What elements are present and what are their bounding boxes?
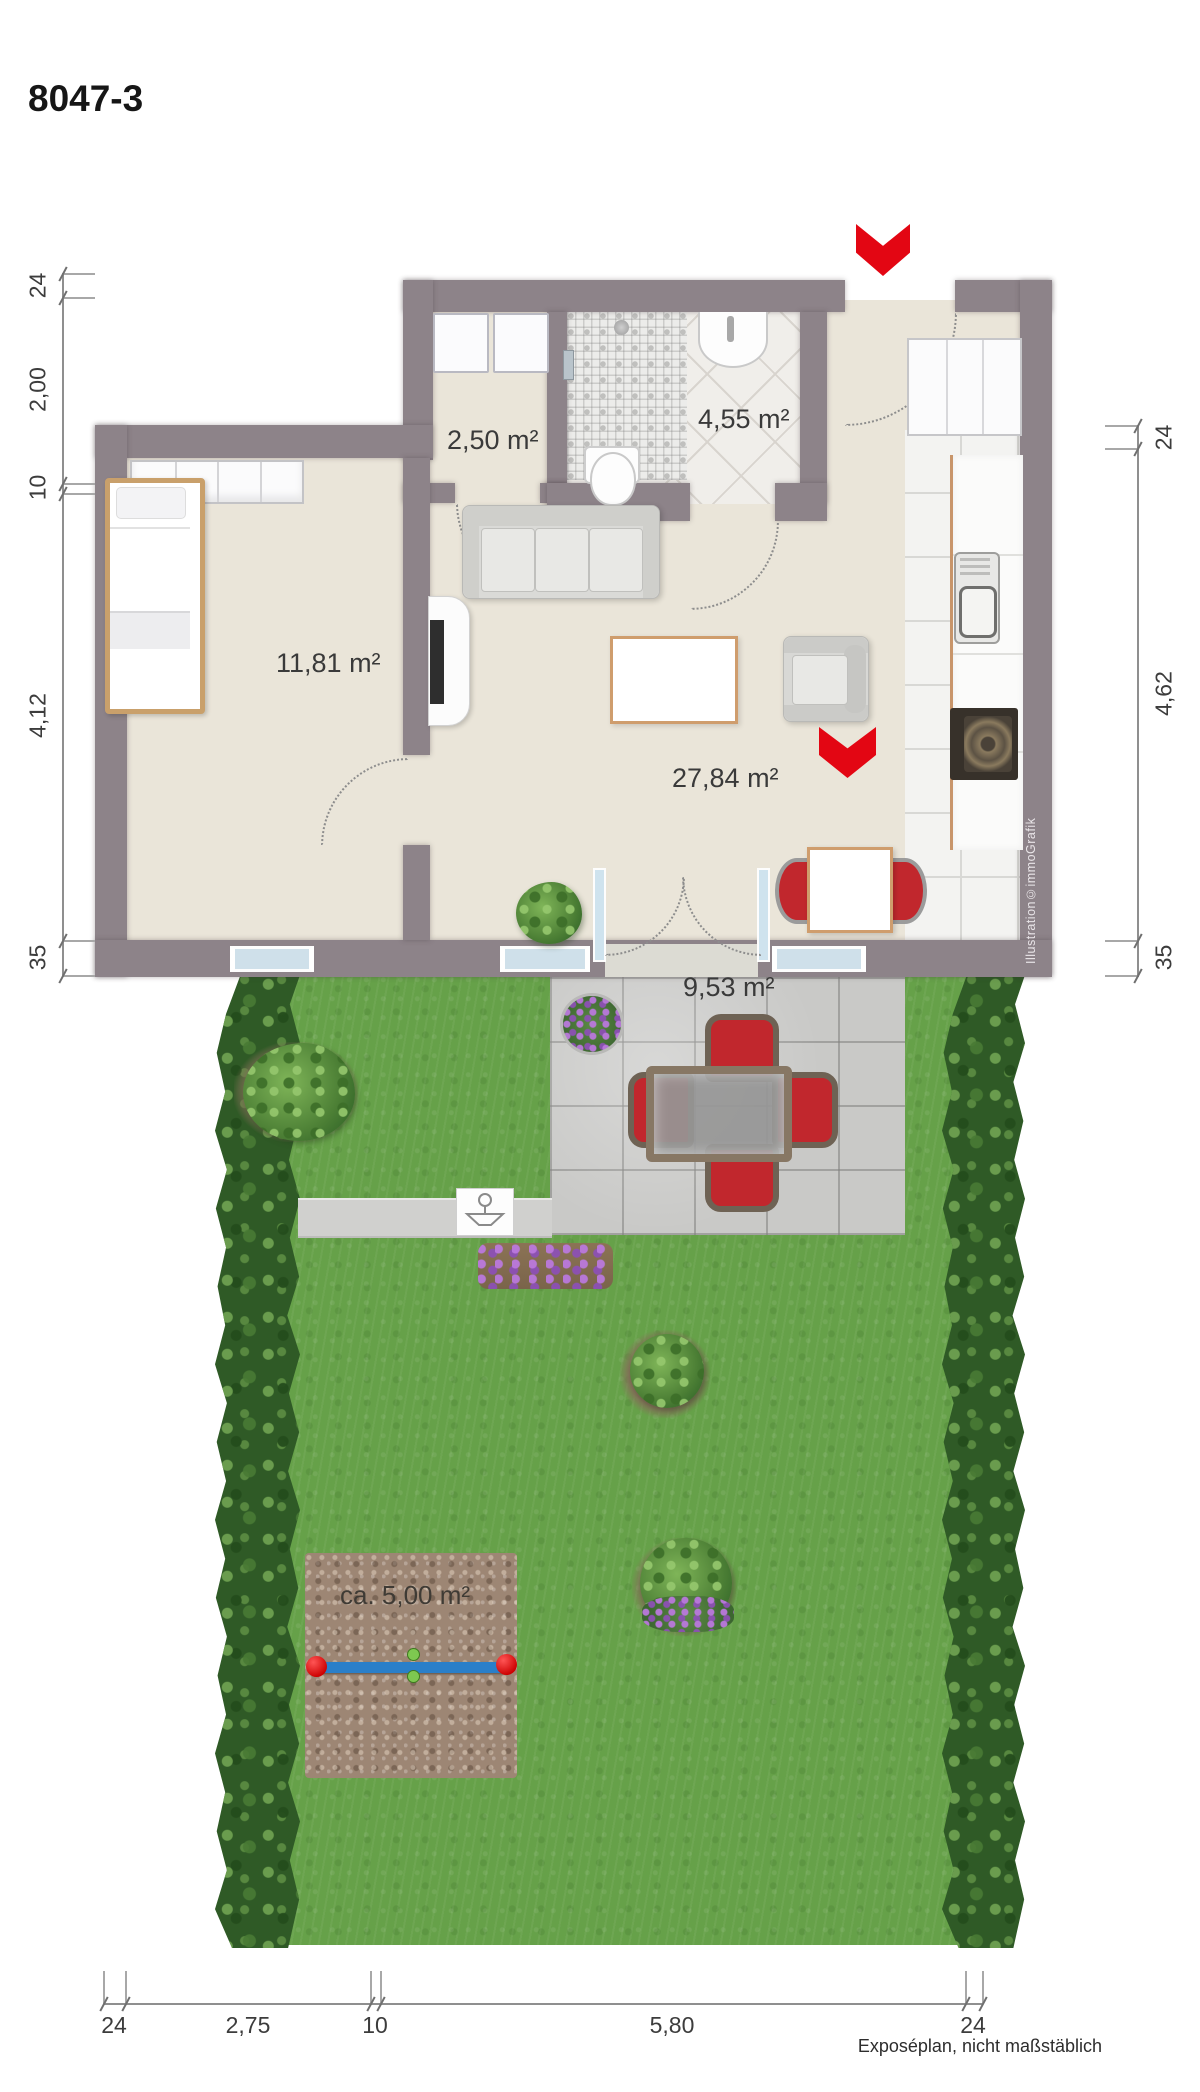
wardrobe-divider (260, 462, 262, 502)
wall-wing-top (95, 425, 433, 458)
wall-bedroom-living-lower (403, 845, 430, 940)
armchair (783, 636, 869, 722)
dim-label-bottom-24b: 24 (925, 2012, 1021, 2039)
dim-label-left-412: 4,12 (25, 668, 52, 764)
dim-label-bottom-10: 10 (327, 2012, 423, 2039)
dim-label-right-462: 4,62 (1151, 646, 1178, 742)
dining-window (772, 946, 866, 972)
dim-stub (62, 483, 95, 485)
bedroom-area-label: 11,81 m² (276, 648, 381, 679)
flower-bed (478, 1243, 613, 1289)
coffee-table (610, 636, 738, 724)
dim-label-bottom-580: 5,80 (624, 2012, 720, 2039)
dim-stub (62, 273, 95, 275)
seesaw-seat-left (306, 1656, 327, 1677)
dim-stub (1105, 448, 1138, 450)
wall-utility-bath-divider (547, 312, 567, 502)
sofa-cushion (535, 528, 589, 592)
tv-screen (430, 620, 444, 704)
terrace-area-label: 9,53 m² (683, 972, 775, 1003)
sofa-arm-right (643, 506, 659, 598)
floorplan-canvas: 8047-3 ca. 5,00 m² (0, 0, 1200, 2092)
dim-label-left-10: 10 (25, 440, 52, 536)
bathroom-area-label: 4,55 m² (698, 404, 790, 435)
utility-area-label: 2,50 m² (447, 425, 539, 456)
wardrobe-divider (217, 462, 219, 502)
kitchen-sink (954, 552, 1000, 644)
terrace-flower-pot (560, 993, 624, 1055)
dim-label-bottom-24a: 24 (66, 2012, 162, 2039)
wall-bath-right (800, 312, 827, 504)
illustration-credit: Illustration©immoGrafik (1024, 788, 1038, 964)
cabinet-divider (946, 340, 948, 434)
sofa-cushion (481, 528, 535, 592)
wall-bedroom-living-upper (403, 458, 430, 755)
dim-label-right-24: 24 (1151, 390, 1178, 486)
water-tap-icon (457, 1189, 513, 1235)
sofa-cushion (589, 528, 643, 592)
dimension-line-bottom (103, 2003, 982, 2005)
flower-cluster (642, 1596, 734, 1632)
dim-label-left-200: 2,00 (25, 342, 52, 438)
dim-stub (62, 975, 95, 977)
kitchen-counter (950, 455, 1023, 850)
water-tap-symbol-box (456, 1188, 514, 1236)
wall-bath-bottom-right (775, 483, 827, 521)
bedroom-window (230, 946, 314, 972)
play-area-label: ca. 5,00 m² (340, 1580, 470, 1611)
dim-stub (1105, 940, 1138, 942)
dim-label-left-24: 24 (25, 238, 52, 334)
hedge-right (942, 975, 1025, 1948)
bed-pillow (116, 487, 186, 519)
stove-burner (964, 716, 1012, 772)
dim-stub (62, 940, 95, 942)
dim-label-left-35: 35 (25, 910, 52, 1006)
bath-sink-faucet (727, 316, 734, 342)
bed-blanket-fold (110, 611, 190, 649)
dryer (493, 313, 549, 373)
dining-table (807, 847, 893, 933)
page-title: 8047-3 (28, 78, 143, 120)
dim-label-right-35: 35 (1151, 910, 1178, 1006)
sink-groove (960, 572, 990, 575)
sink-groove (960, 558, 990, 561)
bed (105, 478, 205, 714)
shower-head (614, 320, 629, 335)
bed-duvet-line (110, 527, 190, 529)
seesaw-handle-bottom (407, 1670, 420, 1683)
sofa (462, 505, 660, 599)
toilet-bowl (590, 452, 636, 506)
wall-top-left (403, 280, 845, 312)
dim-stub (62, 493, 95, 495)
sofa-arm-left (463, 506, 479, 598)
cabinet-divider (982, 340, 984, 434)
dimension-line-right (1137, 425, 1139, 977)
garden-bush-round (630, 1334, 704, 1408)
stove (950, 708, 1018, 780)
sink-basin (959, 586, 997, 638)
entrance-arrow-icon (856, 224, 910, 276)
dim-stub (62, 297, 95, 299)
dim-label-bottom-275: 2,75 (200, 2012, 296, 2039)
indoor-plant (516, 882, 582, 944)
living-area-label: 27,84 m² (672, 763, 779, 794)
garden-bush-large (243, 1043, 355, 1141)
washer (433, 313, 489, 373)
counter-seam (953, 653, 1023, 655)
shower-door-hinge (563, 350, 574, 380)
footer-note: Exposéplan, nicht maßstäblich (858, 2036, 1102, 2057)
dim-stub (1105, 975, 1138, 977)
terrace-table (646, 1066, 792, 1162)
hall-cabinet (907, 338, 1022, 436)
dim-stub (1105, 425, 1138, 427)
sink-groove (960, 565, 990, 568)
sofa-back (463, 506, 659, 526)
armchair-cushion (792, 655, 848, 705)
seesaw-handle-top (407, 1648, 420, 1661)
seesaw-seat-right (496, 1654, 517, 1675)
living-window (500, 946, 590, 972)
dimension-line-left (62, 273, 64, 977)
